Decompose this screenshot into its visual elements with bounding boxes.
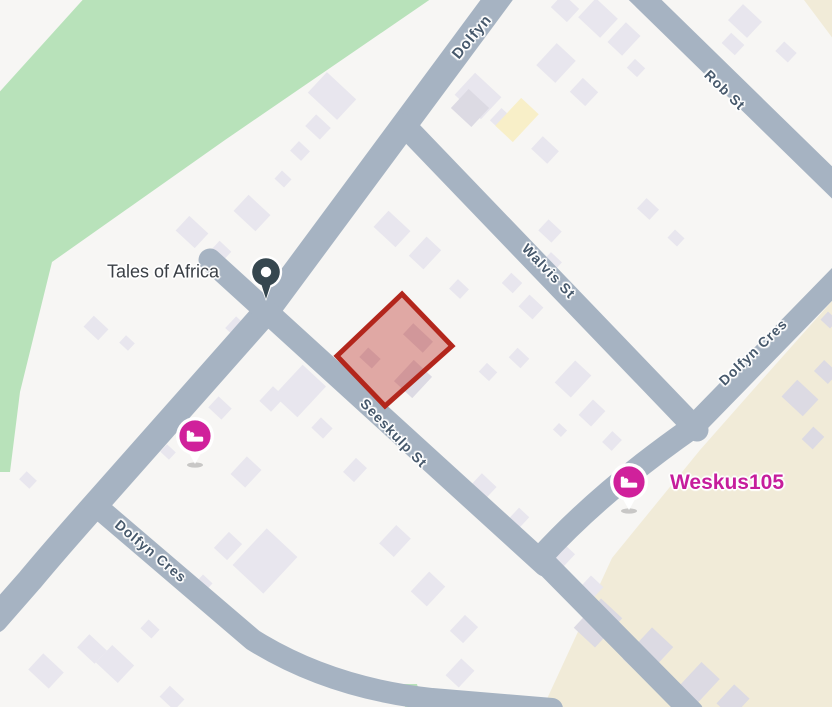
building [84, 316, 109, 341]
pin-dot [261, 267, 271, 277]
weskus105-pin[interactable] [605, 458, 653, 516]
building [479, 363, 497, 381]
building [446, 658, 475, 687]
building [160, 686, 185, 707]
building [28, 653, 63, 688]
pin-circle [613, 466, 644, 497]
building [379, 525, 411, 557]
beach-corner [798, 0, 832, 48]
building [411, 572, 446, 607]
building [311, 417, 332, 438]
poi-label-weskus105[interactable]: Weskus105 [670, 471, 784, 495]
lodging-pin-west[interactable] [171, 412, 219, 470]
building [536, 43, 575, 83]
building [502, 273, 523, 293]
poi-label-tales-of-africa[interactable]: Tales of Africa [107, 262, 219, 283]
building [231, 456, 262, 487]
building [274, 171, 291, 188]
building [531, 136, 559, 163]
building [555, 361, 592, 398]
building [450, 615, 478, 643]
building [579, 400, 606, 427]
building [728, 4, 762, 38]
building [602, 431, 622, 451]
building [409, 237, 441, 270]
building [495, 98, 538, 142]
building [290, 141, 310, 161]
road-walvis-st [404, 125, 697, 430]
building [553, 423, 567, 437]
building [449, 279, 469, 299]
road-dolfyn-cres-left [95, 505, 552, 707]
building [775, 41, 796, 62]
building [637, 198, 659, 220]
building [233, 528, 298, 593]
building [607, 22, 640, 55]
building [234, 195, 271, 232]
building [519, 295, 544, 320]
building [176, 216, 209, 248]
road-seeskulp-st [210, 260, 545, 565]
building [627, 59, 645, 77]
tales-of-africa-pin[interactable] [246, 250, 286, 302]
building [570, 78, 598, 106]
building [214, 532, 242, 560]
map-base-layer [0, 0, 832, 707]
building [667, 230, 684, 247]
building [119, 335, 135, 350]
building [343, 458, 367, 482]
building [509, 348, 530, 368]
building [538, 219, 561, 242]
building [140, 619, 159, 638]
building [722, 33, 745, 56]
building [19, 471, 37, 489]
map-canvas[interactable]: Dolfyn Rob St Walvis St Dolfyn Cres Sees… [0, 0, 832, 707]
pin-circle [179, 420, 210, 451]
building [305, 114, 331, 139]
building [308, 72, 356, 120]
building [374, 211, 411, 248]
building [551, 0, 579, 22]
road-rob-st [635, 0, 832, 198]
building [578, 0, 618, 38]
